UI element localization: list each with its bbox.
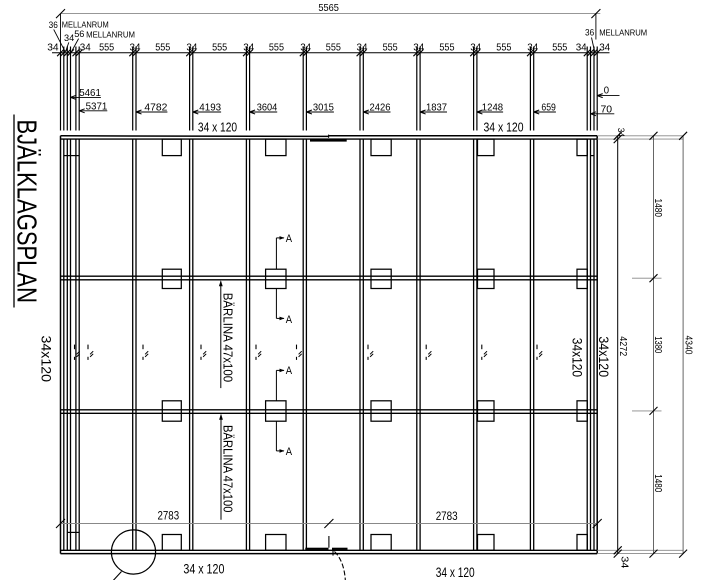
svg-text:555: 555 xyxy=(496,42,511,54)
svg-text:5371: 5371 xyxy=(86,100,108,112)
svg-text:34: 34 xyxy=(527,42,538,54)
svg-text:0: 0 xyxy=(604,85,609,97)
svg-text:34: 34 xyxy=(64,33,74,44)
svg-text:1480: 1480 xyxy=(652,474,664,492)
svg-text:34: 34 xyxy=(186,42,197,54)
svg-text:34x120: 34x120 xyxy=(596,336,612,377)
svg-text:34: 34 xyxy=(243,42,254,54)
svg-text:34x120: 34x120 xyxy=(39,336,55,383)
svg-text:A: A xyxy=(286,233,293,245)
svg-text:56: 56 xyxy=(74,29,84,40)
svg-text:MELLANRUM: MELLANRUM xyxy=(86,29,135,39)
svg-text:1837: 1837 xyxy=(426,102,447,114)
svg-text:555: 555 xyxy=(439,42,454,54)
svg-text:34 x 120: 34 x 120 xyxy=(183,560,224,576)
svg-text:2783: 2783 xyxy=(436,511,458,523)
svg-text:5461: 5461 xyxy=(79,87,101,99)
svg-text:A: A xyxy=(286,365,293,377)
svg-text:3604: 3604 xyxy=(257,102,278,114)
svg-text:555: 555 xyxy=(326,42,341,54)
svg-text:659: 659 xyxy=(541,102,556,114)
svg-text:A: A xyxy=(286,314,293,326)
svg-text:MELLANRUM: MELLANRUM xyxy=(599,27,647,37)
svg-text:555: 555 xyxy=(383,42,398,54)
svg-text:34: 34 xyxy=(616,128,626,137)
svg-text:1380: 1380 xyxy=(652,336,664,353)
svg-text:BÄRLINA 47x100: BÄRLINA 47x100 xyxy=(220,293,235,383)
svg-text:4272: 4272 xyxy=(617,336,629,356)
svg-text:34 x 120: 34 x 120 xyxy=(198,119,237,134)
svg-text:1480: 1480 xyxy=(652,199,664,218)
svg-text:4782: 4782 xyxy=(144,102,167,114)
svg-text:2426: 2426 xyxy=(370,102,391,114)
svg-text:34 x 120: 34 x 120 xyxy=(436,564,475,580)
svg-text:1248: 1248 xyxy=(482,102,503,114)
svg-text:34: 34 xyxy=(357,42,368,54)
svg-text:34: 34 xyxy=(47,42,59,54)
svg-text:34: 34 xyxy=(470,42,481,54)
svg-text:555: 555 xyxy=(155,42,170,54)
svg-text:MELLANRUM: MELLANRUM xyxy=(62,20,109,30)
svg-text:36: 36 xyxy=(49,20,58,31)
svg-text:555: 555 xyxy=(269,42,284,54)
svg-text:36: 36 xyxy=(585,27,594,38)
svg-text:70: 70 xyxy=(601,104,613,116)
svg-text:3015: 3015 xyxy=(313,102,334,114)
svg-text:BJÄLKLAGSPLAN: BJÄLKLAGSPLAN xyxy=(11,120,42,304)
svg-text:34 x 120: 34 x 120 xyxy=(484,120,524,135)
svg-text:555: 555 xyxy=(212,42,227,54)
svg-text:A: A xyxy=(286,446,293,458)
svg-text:2783: 2783 xyxy=(158,510,180,522)
svg-text:34: 34 xyxy=(413,42,424,54)
svg-text:4193: 4193 xyxy=(199,102,221,114)
svg-text:34: 34 xyxy=(80,42,91,54)
svg-text:34x120: 34x120 xyxy=(570,338,586,377)
svg-text:BÄRLINA 47x100: BÄRLINA 47x100 xyxy=(220,425,235,513)
svg-text:5565: 5565 xyxy=(318,2,339,14)
svg-text:34: 34 xyxy=(300,42,311,54)
svg-text:555: 555 xyxy=(552,42,567,54)
svg-text:34: 34 xyxy=(576,42,587,54)
svg-text:34: 34 xyxy=(599,42,610,54)
svg-text:555: 555 xyxy=(99,42,114,54)
svg-text:34: 34 xyxy=(130,42,141,54)
svg-text:4340: 4340 xyxy=(682,336,694,355)
svg-text:34: 34 xyxy=(618,556,629,569)
